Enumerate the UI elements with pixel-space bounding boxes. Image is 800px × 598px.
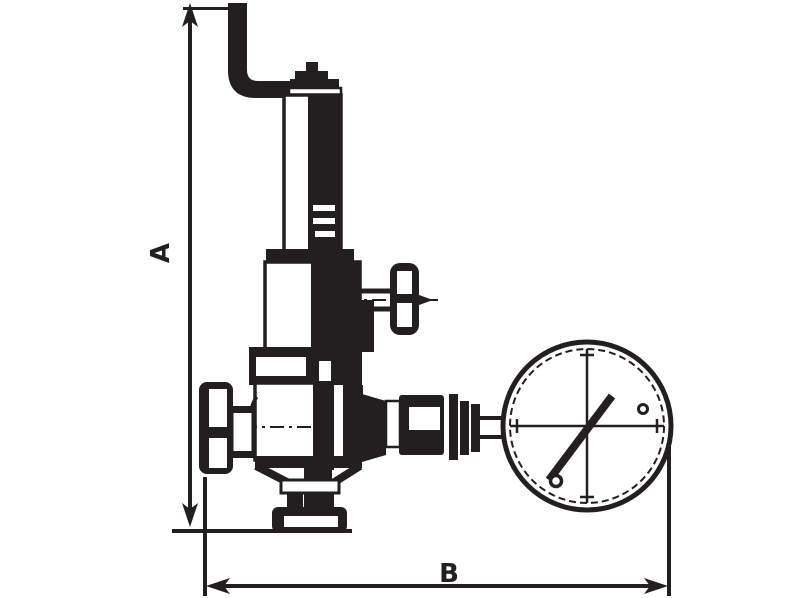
bonnet-detail-slot [315,231,335,237]
outlet-ring [471,404,480,452]
bonnet-detail-slot [313,205,335,211]
bonnet-shaded-side [308,97,343,252]
inlet-stem-cap-bottom [231,451,254,458]
valve-body [243,347,363,470]
inlet-handwheel-slot [209,389,227,427]
flange-window-small [319,361,331,381]
dim-a-label: A [146,243,176,263]
body-face [255,383,315,460]
top-adjustment-cap [289,62,341,96]
inlet-pipe-elbow [228,3,293,98]
side-handwheel-slot [397,303,412,327]
cap-lower [290,79,339,88]
inlet-stem-cap-top [231,406,254,413]
outlet-ring [449,394,458,460]
technical-drawing-canvas: A B [0,0,800,598]
drain-leg [318,493,334,509]
drain-cap-slot [284,516,338,527]
valve-dimension-drawing: A B [0,0,800,598]
drain-neck [281,480,339,493]
body-slot [334,395,343,425]
union-nut-window [409,407,440,430]
outlet-ring [460,401,469,455]
gauge-needle-tail-ring [551,476,562,487]
outlet-union-train [362,394,506,462]
spring-bonnet-tube [284,95,343,252]
dim-b-label: B [439,559,459,589]
outlet-transition [362,394,386,462]
inlet-stem [232,410,253,454]
drain-assembly [256,460,360,532]
pipe-shape [228,3,293,98]
bonnet-detail-slot [313,218,335,224]
drain-leg [287,493,303,509]
inlet-handwheel-slot [209,438,227,468]
outlet-gap-ring [386,401,400,447]
inlet-connection [199,382,257,474]
gauge-dial-dot [639,405,648,414]
flange-window [256,357,306,376]
body-right-block [343,385,363,458]
side-handwheel-slot [397,271,412,294]
pressure-gauge [503,342,671,510]
